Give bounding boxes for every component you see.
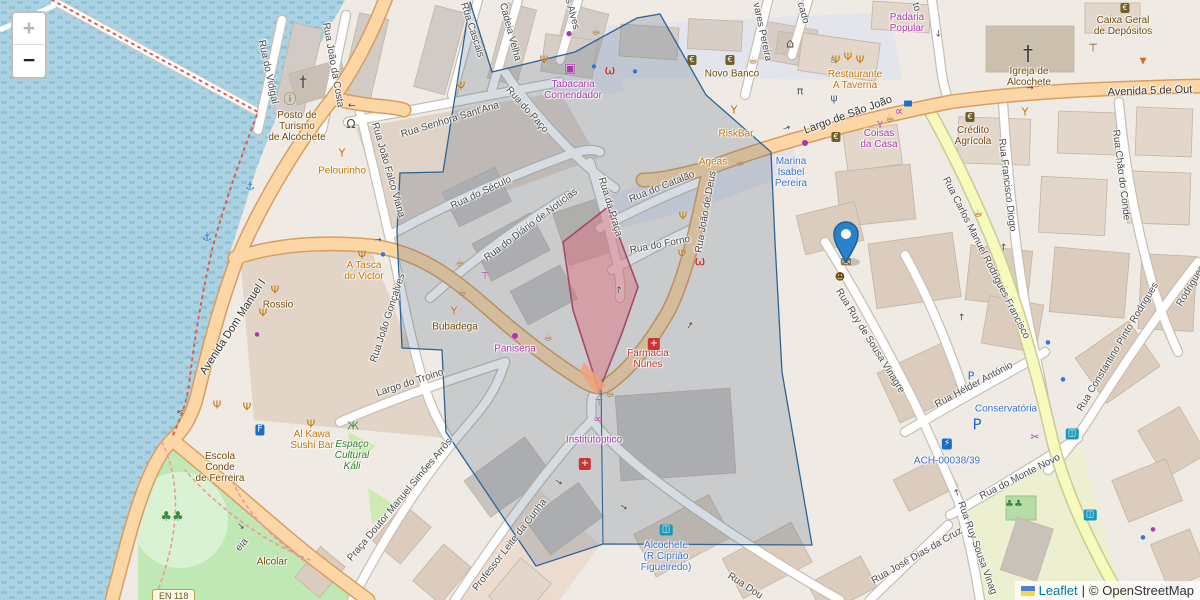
map-marker[interactable] [826, 212, 866, 268]
osm-copyright[interactable]: © OpenStreetMap [1089, 583, 1194, 598]
map-canvas[interactable]: Rua do VidigalRua João da CostaRua Casca… [0, 0, 1200, 600]
route-shield: EN 118 [152, 589, 195, 600]
map-tiles [0, 0, 1200, 600]
zoom-out-button[interactable]: − [13, 45, 45, 77]
attribution-separator: | [1082, 583, 1085, 598]
attribution-bar: Leaflet | © OpenStreetMap [1015, 581, 1200, 600]
ukraine-flag-icon [1021, 586, 1035, 596]
zoom-control: + − [11, 11, 47, 79]
leaflet-link[interactable]: Leaflet [1039, 583, 1078, 598]
zoom-in-button[interactable]: + [13, 13, 45, 45]
